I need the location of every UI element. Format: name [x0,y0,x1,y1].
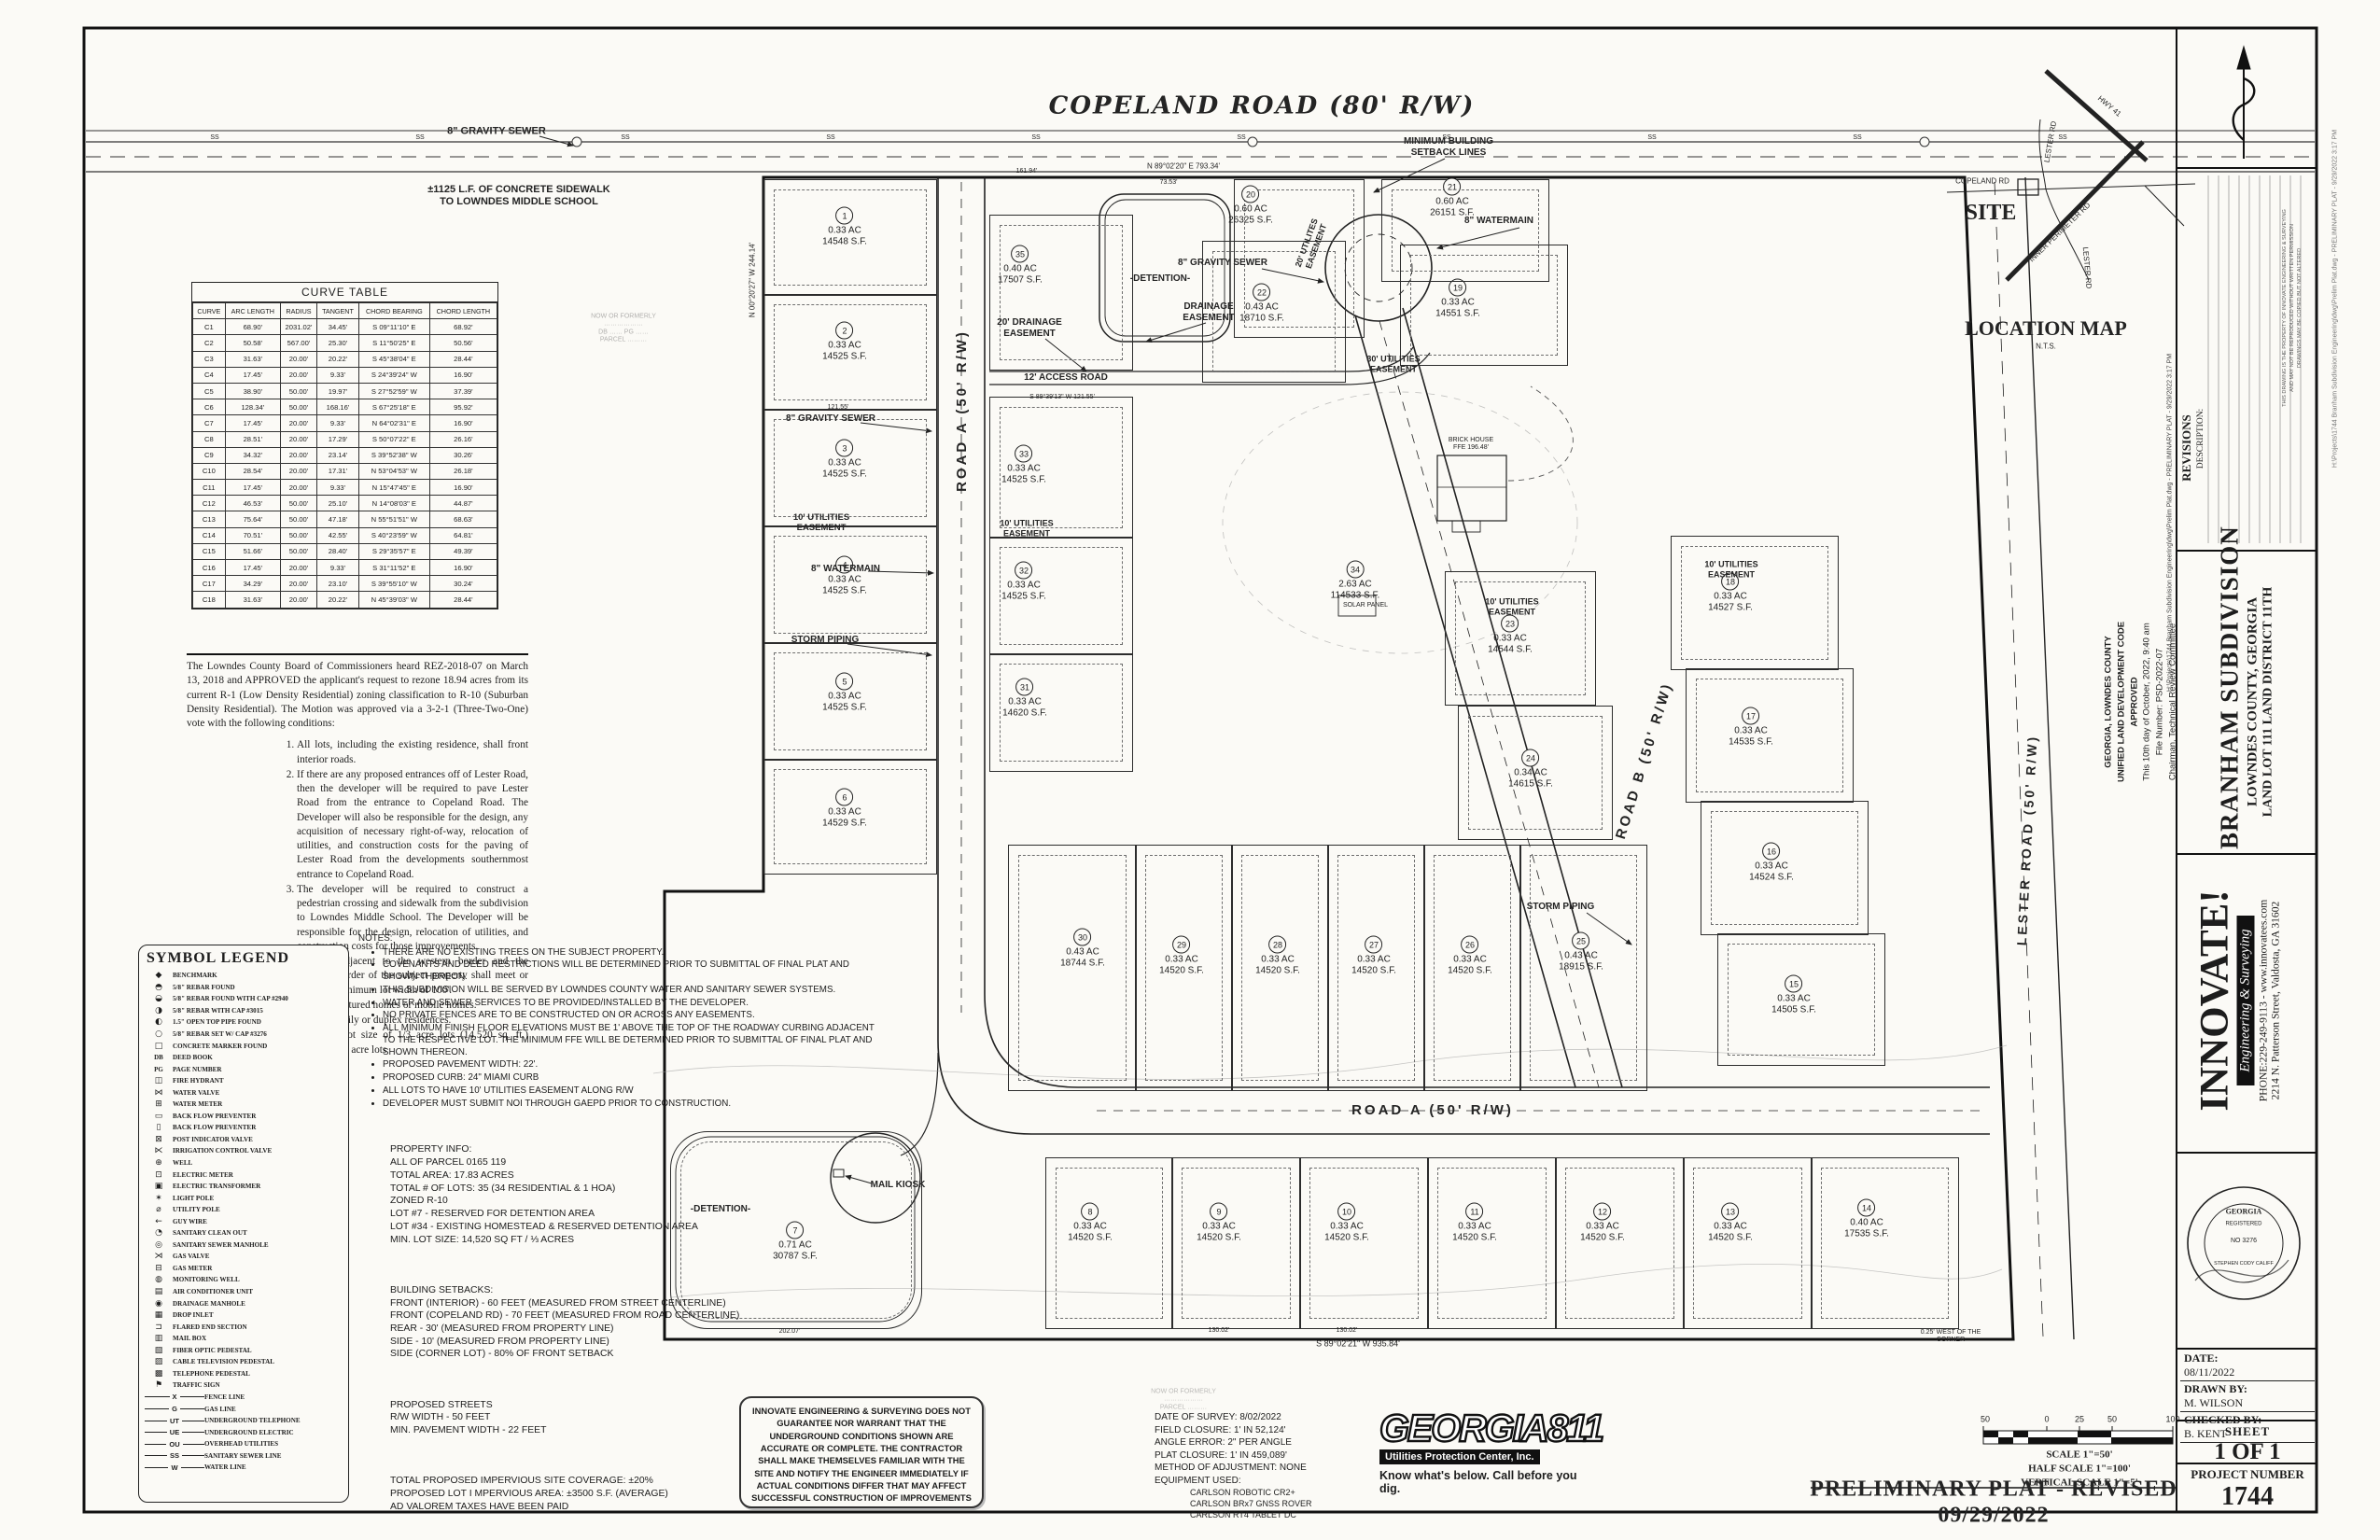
lot-23-acreage: 0.33 AC [1493,634,1527,644]
curve-row: C168.90'2031.02'34.45'S 09°11'10" E68.92… [193,319,497,335]
firm-division: Engineering & Surveying [2237,916,2255,1085]
lot-8-setback-line [1056,1168,1163,1319]
lot-34-acreage: 2.63 AC [1338,580,1372,590]
legend-item: ⊡ELECTRIC METER [145,1169,343,1181]
curve-cell: C1 [193,319,226,335]
note-item: NO PRIVATE FENCES ARE TO BE CONSTRUCTED … [383,1010,881,1022]
approval-stamp-line: This 10th day of October, 2022, 9:40 am [2141,548,2154,856]
lot-8-label: 80.33 AC14520 S.F. [1068,1203,1113,1243]
scalebar-text-1: HALF SCALE 1"=100' [2028,1463,2131,1476]
lot-1-acreage: 0.33 AC [828,226,861,236]
concrete-marker-found-icon: □ [145,1042,173,1051]
legend-item: ▥MAIL BOX [145,1333,343,1345]
curve-cell: 50.00' [280,399,316,415]
water-meter-icon: ⊞ [145,1099,173,1109]
lot-13-number: 13 [1722,1203,1740,1221]
note-item: THERE ARE NO EXISTING TREES ON THE SUBJE… [383,947,881,959]
lot-15-number: 15 [1785,975,1803,993]
lot-27-number: 27 [1365,936,1383,954]
sheet-number-block: SHEET 1 OF 1 [2180,1424,2315,1465]
georgia811-logo: GEORGIA811 Utilities Protection Center, … [1379,1409,1596,1495]
curve-row: C331.63'20.00'20.22'S 45°38'04" E28.44' [193,351,497,367]
lot-30-number: 30 [1074,929,1092,946]
sewer-line-tag-3: SS [826,134,834,142]
copyright-line: THIS DRAWING IS THE PROPERTY OF INNOVATE… [2282,209,2288,407]
lot-12-acreage: 0.33 AC [1586,1222,1619,1232]
curve-row: C1028.54'20.00'17.31'N 53°04'53" W26.18' [193,463,497,479]
lot-14-label: 140.40 AC17535 S.F. [1844,1199,1889,1239]
legend-item: PGPAGE NUMBER [145,1063,343,1075]
symbol-legend: SYMBOL LEGEND ◆BENCHMARK◓5/8" REBAR FOUN… [138,945,349,1503]
lot-23-square-feet: 14544 S.F. [1488,645,1533,655]
lot-5-number: 5 [836,673,854,691]
legend-item: ▩TELEPHONE PEDESTAL [145,1368,343,1380]
curve-cell: N 15°47'45" E [358,480,429,496]
curve-cell: 75.64' [225,511,280,527]
curve-cell: 28.44' [429,351,497,367]
traffic-sign-icon: ⚑ [145,1380,173,1390]
note-item: PROPOSED CURB: 24" MIAMI CURB [383,1072,881,1085]
curve-cell: N 64°02'31" E [358,415,429,431]
legend-item: ⊠POST INDICATOR VALVE [145,1134,343,1146]
lot-9-setback-line [1182,1168,1291,1319]
legend-item-label: SANITARY SEWER MANHOLE [173,1241,269,1249]
curve-cell: 23.10' [317,576,359,592]
lot-24-number: 24 [1522,749,1540,767]
property-info-line: ALL OF PARCEL 0165 119 [390,1156,763,1169]
curve-cell: 25.30' [317,335,359,351]
well-icon: ⊕ [145,1158,173,1168]
curve-cell: 17.45' [225,415,280,431]
location-map-label-1: LESTER RD [2042,120,2058,163]
legend-line-label: GAS LINE [204,1406,236,1413]
legend-item: ◉DRAINAGE MANHOLE [145,1297,343,1309]
curve-cell: 20.00' [280,480,316,496]
project-number-value: 1744 [2180,1482,2315,1512]
legend-line-tag: G [172,1405,177,1413]
legend-line-item: OUOVERHEAD UTILITIES [145,1438,343,1450]
curve-cell: C5 [193,383,226,399]
legend-item-label: CONCRETE MARKER FOUND [173,1043,267,1050]
curve-cell: S 45°38'04" E [358,351,429,367]
legend-item-label: 5/8" REBAR FOUND [173,984,235,991]
lot-5-label: 50.33 AC14525 S.F. [822,673,867,713]
survey-equipment-line: CARLSON BRx7 GNSS ROVER [1190,1498,1351,1509]
curve-cell: 23.14' [317,447,359,463]
lot-16-acreage: 0.33 AC [1755,861,1788,872]
lot-10-square-feet: 14520 S.F. [1324,1233,1369,1243]
lot-35-parcel [989,215,1133,371]
curve-cell: 20.00' [280,592,316,608]
curve-col-header: TANGENT [317,303,359,319]
project-number-label: PROJECT NUMBER [2180,1467,2315,1482]
curve-cell: 20.22' [317,592,359,608]
curve-cell: C8 [193,431,226,447]
curve-row: C934.32'20.00'23.14'S 39°52'38" W30.26' [193,447,497,463]
cable-television-pedestal-icon: ▨ [145,1357,173,1366]
lot-2-acreage: 0.33 AC [828,341,861,351]
plat-callout-5: 73.53' [1160,179,1178,187]
project-county: LOWNDES COUNTY, GEORGIA [2246,554,2261,849]
lot-32-acreage: 0.33 AC [1007,581,1041,591]
curve-row: C717.45'20.00'9.33'N 64°02'31" E16.90' [193,415,497,431]
plat-callout-4: 161.94' [1016,168,1038,175]
curve-row: C1734.29'20.00'23.10'S 39°55'10" W30.24' [193,576,497,592]
light-pole-icon: ✶ [145,1194,173,1203]
lot-7-acreage: 0.71 AC [778,1240,812,1251]
plat-callout-2: COPELAND ROAD (80' R/W) [1049,92,1476,121]
property-info-line: TOTAL # OF LOTS: 35 (34 RESIDENTIAL & 1 … [390,1183,763,1196]
plat-callout-37: S 89°02'21" W 935.84' [1316,1339,1400,1350]
curve-row: C250.58'567.00'25.30'S 11°50'25" E50.56' [193,335,497,351]
legend-item-label: PAGE NUMBER [173,1066,221,1073]
plat-callout-16: 121.55' [828,404,849,412]
curve-cell: 20.22' [317,351,359,367]
lot-2-label: 20.33 AC14525 S.F. [822,322,867,362]
lot-30-square-feet: 18744 S.F. [1060,959,1105,969]
plat-callout-21: 10' UTILITIES EASEMENT [1000,518,1053,538]
lot-10-setback-line [1309,1168,1419,1319]
legend-item-label: DROP INLET [173,1311,214,1319]
legend-item-label: SANITARY CLEAN OUT [173,1229,247,1237]
curve-cell: C15 [193,543,226,559]
lot-13-square-feet: 14520 S.F. [1708,1233,1753,1243]
project-title-block: BRANHAM SUBDIVISION LOWNDES COUNTY, GEOR… [2216,554,2276,849]
lot-34-square-feet: 114533 S.F. [1331,591,1380,601]
lot-34-label: 342.63 AC114533 S.F. [1331,561,1380,601]
curve-cell: 28.51' [225,431,280,447]
building-setback-line: SIDE (CORNER LOT) - 80% OF FRONT SETBACK [390,1348,763,1361]
curve-row: C1470.51'50.00'42.55'S 40°23'59" W64.81' [193,527,497,543]
legend-item-label: DRAINAGE MANHOLE [173,1300,245,1308]
legend-item: ◒5/8" REBAR FOUND WITH CAP #2940 [145,993,343,1005]
legend-item-label: FIRE HYDRANT [173,1077,224,1085]
lot-6-acreage: 0.33 AC [828,807,861,818]
5-8-rebar-set-w-cap-3276-icon: ○ [145,1029,173,1039]
plat-callout-23: 10' UTILITIES EASEMENT [1704,559,1757,579]
impervious-total-line: AD VALOREM TAXES HAVE BEEN PAID [390,1501,763,1514]
curve-cell: 31.63' [225,592,280,608]
notes-list: THERE ARE NO EXISTING TREES ON THE SUBJE… [358,947,881,1111]
curve-cell: 95.92' [429,399,497,415]
preliminary-plat-banner: PRELIMINARY PLAT - REVISED 09/29/2022 [1800,1477,2187,1530]
lot-16-label: 160.33 AC14524 S.F. [1749,843,1794,883]
legend-item-label: UTILITY POLE [173,1206,220,1213]
lot-4-square-feet: 14525 S.F. [822,586,867,596]
curve-cell: 9.33' [317,367,359,383]
lot-11-number: 11 [1466,1203,1484,1221]
lot-33-label: 330.33 AC14525 S.F. [1001,445,1046,485]
curve-cell: C4 [193,367,226,383]
legend-item-label: CABLE TELEVISION PEDESTAL [173,1358,274,1365]
curve-cell: C13 [193,511,226,527]
plat-callout-17: 8" GRAVITY SEWER [786,413,875,425]
legend-item: ▦DROP INLET [145,1309,343,1322]
sewer-line-tag-8: SS [1853,134,1861,142]
survey-data-block: DATE OF SURVEY: 8/02/2022FIELD CLOSURE: … [1155,1411,1351,1520]
legend-item-label: ELECTRIC METER [173,1171,233,1179]
lot-28-label: 280.33 AC14520 S.F. [1255,936,1300,976]
scalebar-tick-3: 50 [2107,1415,2117,1425]
survey-equipment-line: CARLSON RT4 TABLET DC [1190,1509,1351,1520]
legend-item-label: GUY WIRE [173,1218,207,1225]
impervious-total-line: TOTAL PROPOSED IMPERVIOUS SITE COVERAGE:… [390,1475,763,1488]
curve-cell: 70.51' [225,527,280,543]
lot-25-acreage: 0.43 AC [1564,951,1598,961]
plat-callout-1: ±1125 L.F. OF CONCRETE SIDEWALK TO LOWND… [427,184,610,208]
curve-cell: C7 [193,415,226,431]
legend-item: ▣ELECTRIC TRANSFORMER [145,1181,343,1193]
lot-1-number: 1 [836,207,854,225]
legend-item: ✶LIGHT POLE [145,1192,343,1204]
water-valve-icon: ⋈ [145,1088,173,1098]
project-land-lot: LAND LOT 111 LAND DISTRICT 11TH [2261,554,2276,849]
legend-item-label: IRRIGATION CONTROL VALVE [173,1147,272,1155]
lot-31-square-feet: 14620 S.F. [1002,708,1047,719]
legend-item: ⊞WATER METER [145,1099,343,1111]
location-map-label-6: LOCATION MAP [1965,316,2127,341]
lot-14-acreage: 0.40 AC [1850,1218,1883,1228]
lot-32-number: 32 [1015,562,1033,580]
survey-data-line: METHOD OF ADJUSTMENT: NONE [1155,1462,1351,1475]
curve-cell: 128.34' [225,399,280,415]
survey-equipment-line: CARLSON ROBOTIC CR2+ [1190,1487,1351,1498]
curve-cell: C12 [193,496,226,511]
scalebar-text-0: SCALE 1"=50' [2046,1449,2112,1462]
legend-line-item: GGAS LINE [145,1403,343,1415]
legend-item-label: GAS METER [173,1265,212,1272]
legend-item-label: WELL [173,1159,192,1167]
lot-14-square-feet: 17535 S.F. [1844,1229,1889,1239]
legend-item: ▯BACK FLOW PREVENTER [145,1122,343,1134]
lot-11-setback-line [1437,1168,1547,1319]
lot-28-number: 28 [1269,936,1287,954]
lot-9-square-feet: 14520 S.F. [1197,1233,1241,1243]
credit-label: DRAWN BY: [2184,1382,2311,1396]
location-map-label-0: COPELAND RD [1955,176,2009,185]
curve-cell: S 27°52'59" W [358,383,429,399]
curve-cell: C18 [193,592,226,608]
curve-cell: 20.00' [280,576,316,592]
plat-callout-15: S 89°39'13" W 121.55' [1029,394,1095,401]
sheet-value: 1 OF 1 [2180,1439,2315,1465]
property-info-line: LOT #34 - EXISTING HOMESTEAD & RESERVED … [390,1221,763,1234]
curve-cell: 38.90' [225,383,280,399]
approval-stamp-line: UNIFIED LAND DEVELOPMENT CODE [2115,548,2128,856]
lot-7-square-feet: 30787 S.F. [773,1252,818,1262]
legend-item-label: FLARED END SECTION [173,1323,247,1331]
plat-callout-38: 0.25' WEST OF THE CORNER [1921,1329,1981,1345]
curve-cell: 34.45' [317,319,359,335]
legend-item-label: POST INDICATOR VALVE [173,1136,253,1143]
curve-cell: 16.90' [429,560,497,576]
lot-24-square-feet: 14615 S.F. [1508,779,1553,790]
plat-callout-29: ROAD B (50' R/W) [1613,680,1676,841]
legend-line-label: FENCE LINE [204,1393,245,1401]
1-5-open-top-pipe-found-icon: ◐ [145,1017,173,1027]
sheet-label: SHEET [2180,1424,2315,1439]
credit-label: DATE: [2184,1351,2311,1365]
plat-callout-20: STORM PIPING [791,635,860,646]
lot-22-number: 22 [1253,284,1271,301]
curve-cell: C10 [193,463,226,479]
curve-cell: C11 [193,480,226,496]
lot-20-square-feet: 26325 S.F. [1228,216,1273,226]
lot-17-acreage: 0.33 AC [1734,726,1768,736]
lot-23-number: 23 [1502,615,1519,633]
curve-cell: 26.16' [429,431,497,447]
legend-line-tag: W [171,1463,177,1472]
curve-cell: 17.29' [317,431,359,447]
sewer-line-tag-6: SS [1442,134,1450,142]
lot-6-number: 6 [836,789,854,806]
curve-cell: 168.16' [317,399,359,415]
lot-10-number: 10 [1338,1203,1356,1221]
curve-cell: 68.63' [429,511,497,527]
lot-17-label: 170.33 AC14535 S.F. [1729,707,1773,748]
legend-item: ▭BACK FLOW PREVENTER [145,1111,343,1123]
curve-cell: N 14°08'03" E [358,496,429,511]
curve-row: C1831.63'20.00'20.22'N 45°39'03" W28.44' [193,592,497,608]
guy-wire-icon: ← [145,1217,173,1226]
lot-33-acreage: 0.33 AC [1007,464,1041,474]
plat-callout-3: N 89°02'20" E 793.34' [1147,161,1220,170]
underground-electric-icon: UE [145,1428,204,1436]
lot-11-parcel [1427,1157,1557,1329]
curve-cell: 20.00' [280,367,316,383]
curve-cell: 17.45' [225,367,280,383]
lot-31-acreage: 0.33 AC [1008,697,1042,707]
lot-19-square-feet: 14551 S.F. [1435,309,1480,319]
fire-hydrant-icon: ◫ [145,1076,173,1085]
lot-26-acreage: 0.33 AC [1453,955,1487,965]
curve-cell: 2031.02' [280,319,316,335]
location-map-label-7: N.T.S. [2036,342,2056,350]
lot-27-acreage: 0.33 AC [1357,955,1391,965]
firm-address: 2214 N. Patterson Street, Valdosta, GA 3… [2270,860,2282,1141]
legend-item: DBDEED BOOK [145,1052,343,1064]
legend-item: ⚑TRAFFIC SIGN [145,1379,343,1392]
lot-19-acreage: 0.33 AC [1441,298,1475,308]
lot-15-acreage: 0.33 AC [1777,994,1811,1004]
building-setback-line: REAR - 30' (MEASURED FROM PROPERTY LINE) [390,1323,763,1336]
credit-value: M. WILSON [2184,1396,2311,1410]
curve-cell: N 45°39'03" W [358,592,429,608]
lot-12-number: 12 [1594,1203,1612,1221]
legend-item: ◫FIRE HYDRANT [145,1075,343,1087]
lot-27-label: 270.33 AC14520 S.F. [1351,936,1396,976]
lot-10-parcel [1299,1157,1429,1329]
property-info-line: MIN. LOT SIZE: 14,520 SQ FT / ⅓ ACRES [390,1234,763,1247]
seal-text-3: STEPHEN CODY CALIFF [2214,1261,2274,1267]
curve-cell: 20.00' [280,415,316,431]
plat-callout-35: 130.02' [1209,1327,1230,1335]
curve-cell: 50.00' [280,511,316,527]
plat-callout-39: NOW OR FORMERLY ……………… DB …… PG …… PARCE… [591,314,656,344]
lot-22-label: 220.43 AC18710 S.F. [1239,284,1284,324]
curve-cell: 46.53' [225,496,280,511]
lot-23-label: 230.33 AC14544 S.F. [1488,615,1533,655]
lot-16-square-feet: 14524 S.F. [1749,873,1794,883]
lot-9-number: 9 [1211,1203,1228,1221]
plat-callout-22: 10' UTILITIES EASEMENT [1485,596,1538,616]
curve-row: C6128.34'50.00'168.16'S 67°25'18" E95.92… [193,399,497,415]
legend-line-label: WATER LINE [204,1463,246,1471]
curve-row: C417.45'20.00'9.33'S 24°39'24" W16.90' [193,367,497,383]
legend-line-item: UTUNDERGROUND TELEPHONE [145,1415,343,1427]
symbol-legend-items: ◆BENCHMARK◓5/8" REBAR FOUND◒5/8" REBAR F… [145,970,343,1474]
lot-13-acreage: 0.33 AC [1714,1222,1747,1232]
legend-line-tag: UT [170,1417,179,1425]
lot-29-square-feet: 14520 S.F. [1159,966,1204,976]
sanitary-sewer-line-icon: SS [145,1451,204,1460]
sewer-line-tag-9: SS [2058,134,2066,142]
lot-32-label: 320.33 AC14525 S.F. [1001,562,1046,602]
approval-stamp-line: APPROVED [2128,548,2141,856]
lot-3-number: 3 [836,440,854,457]
lot-14-number: 14 [1858,1199,1876,1217]
legend-item-label: MAIL BOX [173,1335,206,1342]
curve-col-header: CHORD LENGTH [429,303,497,319]
legend-line-item: WWATER LINE [145,1462,343,1474]
back-flow-preventer-icon: ▯ [145,1123,173,1132]
curve-cell: 31.63' [225,351,280,367]
curve-cell: C2 [193,335,226,351]
lot-8-acreage: 0.33 AC [1073,1222,1107,1232]
lot-27-square-feet: 14520 S.F. [1351,966,1396,976]
electric-transformer-icon: ▣ [145,1182,173,1191]
lot-11-label: 110.33 AC14520 S.F. [1452,1203,1497,1243]
lot-6-square-feet: 14529 S.F. [822,819,867,829]
legend-item: ⋉IRRIGATION CONTROL VALVE [145,1145,343,1157]
lot-9-label: 90.33 AC14520 S.F. [1197,1203,1241,1243]
lot-1-square-feet: 14548 S.F. [822,237,867,247]
curve-cell: 44.87' [429,496,497,511]
legend-item-label: BACK FLOW PREVENTER [173,1113,256,1120]
lot-35-label: 350.40 AC17507 S.F. [998,245,1043,286]
approval-stamp-line: File Number: PSD-2022-07 [2154,548,2167,856]
survey-data-line: ANGLE ERROR: 2" PER ANGLE [1155,1436,1351,1449]
lot-26-label: 260.33 AC14520 S.F. [1448,936,1492,976]
sewer-line-tag-2: SS [621,134,629,142]
curve-cell: S 11°50'25" E [358,335,429,351]
lot-17-number: 17 [1743,707,1760,725]
note-item: WATER AND SEWER SERVICES TO BE PROVIDED/… [383,998,881,1010]
property-info-title: PROPERTY INFO: [390,1143,763,1156]
plat-callout-40: NOW OR FORMERLY ……………… PARCEL ……… [1151,1389,1216,1412]
lot-5-square-feet: 14525 S.F. [822,703,867,713]
curve-cell: 17.31' [317,463,359,479]
lot-25-label: 250.43 AC18915 S.F. [1559,932,1603,973]
legend-line-tag: SS [170,1451,179,1460]
lot-2-number: 2 [836,322,854,340]
legend-line-tag: OU [169,1440,179,1449]
lot-13-label: 130.33 AC14520 S.F. [1708,1203,1753,1243]
curve-row: C828.51'20.00'17.29'S 50°07'22" E26.16' [193,431,497,447]
lot-5-acreage: 0.33 AC [828,692,861,702]
curve-table-header: CURVEARC LENGTHRADIUSTANGENTCHORD BEARIN… [193,303,497,319]
lot-9-acreage: 0.33 AC [1202,1222,1236,1232]
curve-table-title: CURVE TABLE [192,283,497,302]
plat-callout-34: 202.07' [779,1328,801,1336]
legend-line-item: SSSANITARY SEWER LINE [145,1449,343,1462]
legend-item: ⌀UTILITY POLE [145,1204,343,1216]
legend-item-label: 1.5" OPEN TOP PIPE FOUND [173,1018,261,1026]
lot-18-square-feet: 14527 S.F. [1708,603,1753,613]
note-item: DEVELOPER MUST SUBMIT NOI THROUGH GAEPD … [383,1099,881,1111]
lot-26-square-feet: 14520 S.F. [1448,966,1492,976]
legend-item: ◆BENCHMARK [145,970,343,982]
